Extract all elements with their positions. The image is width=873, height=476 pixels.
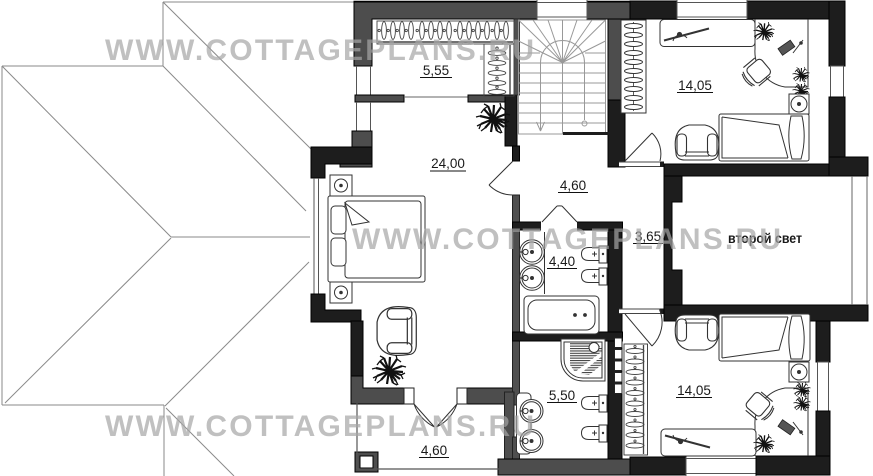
svg-text:4,60: 4,60 [421,443,447,458]
svg-text:5,50: 5,50 [549,388,575,403]
svg-text:14,05: 14,05 [677,383,711,398]
svg-text:WWW.COTTAGEPLANS.RU: WWW.COTTAGEPLANS.RU [105,34,536,67]
svg-text:WWW.COTTAGEPLANS.RU: WWW.COTTAGEPLANS.RU [105,410,536,443]
svg-text:14,05: 14,05 [678,78,712,93]
svg-text:24,00: 24,00 [431,156,465,171]
svg-text:4,40: 4,40 [549,254,575,269]
svg-text:WWW.COTTAGEPLANS.RU: WWW.COTTAGEPLANS.RU [352,223,783,256]
svg-text:4,60: 4,60 [560,178,586,193]
